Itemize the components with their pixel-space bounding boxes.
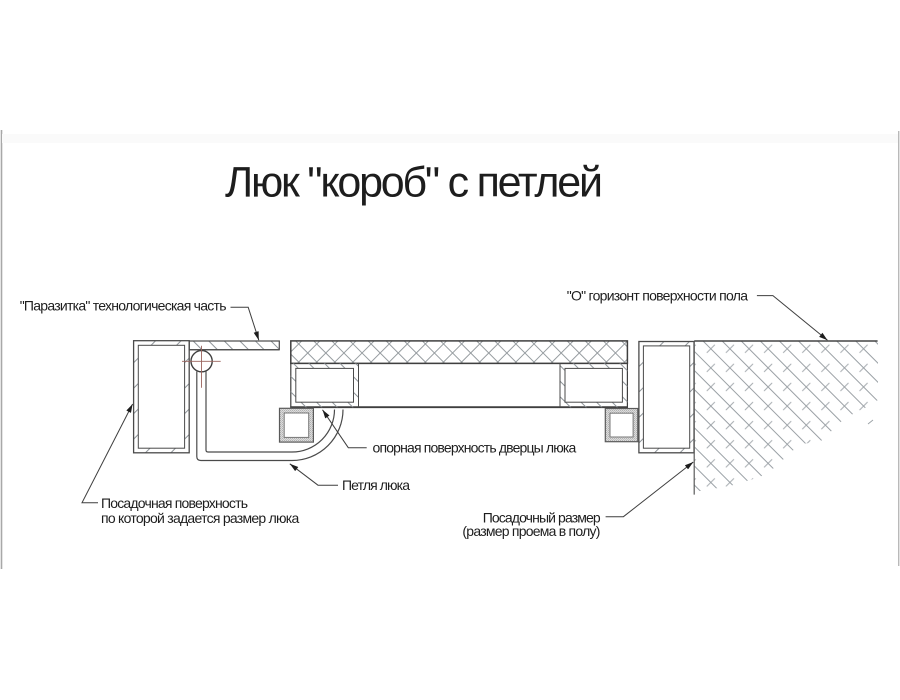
svg-text:Люк "короб" с петлей: Люк "короб" с петлей: [225, 159, 603, 207]
svg-text:Посадочная поверхность: Посадочная поверхность: [101, 495, 248, 511]
svg-text:"Паразитка" технологическая ча: "Паразитка" технологическая часть: [20, 298, 227, 314]
svg-text:(размер проема в полу): (размер проема в полу): [462, 523, 600, 539]
svg-text:опорная поверхность дверцы люк: опорная поверхность дверцы люка: [373, 440, 577, 456]
svg-text:"О" горизонт поверхности пола: "О" горизонт поверхности пола: [567, 288, 749, 304]
svg-text:по которой задается размер люк: по которой задается размер люка: [101, 510, 300, 526]
svg-text:Петля люка: Петля люка: [342, 477, 410, 493]
